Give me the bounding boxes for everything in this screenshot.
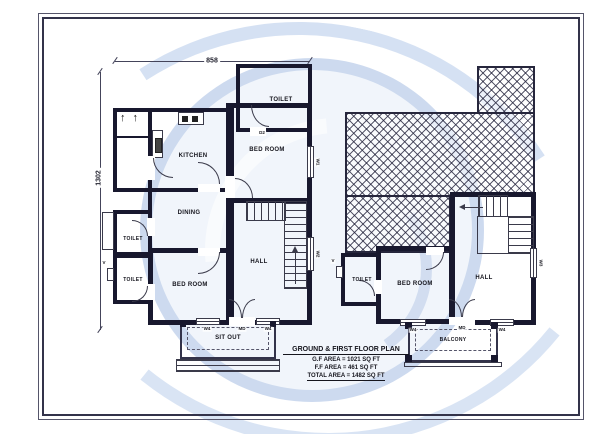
gf-stair-upper-run [246,201,286,221]
window-tag-w4: W4 [409,328,418,333]
ff-roof-hatch-lower [345,195,451,253]
vent-tag-v: V [330,259,335,264]
gf-lobby-divider-wall [117,136,148,138]
gf-front-window-left [196,318,220,325]
gf-stair-arrow-icon [292,246,298,252]
gf-toilet-top-label: TOILET [269,97,292,103]
gf-dining-room [148,188,234,252]
gf-sitout-steps [176,359,280,372]
gf-bedroom-label: BED ROOM [172,282,207,288]
total-area-text: TOTAL AREA = 1482 SQ FT [307,372,384,381]
dimension-line-left [100,72,101,330]
ff-bedroom-label: BED ROOM [397,281,432,287]
ff-roof-hatch-main [345,112,535,197]
ff-area-text: F.F AREA = 461 SQ FT [283,364,409,372]
sink-icon [152,130,163,158]
gf-main-door-gap [229,317,255,326]
ff-toilet-label: TOILET [352,277,372,283]
window-tag-w3: W3 [538,259,543,268]
gf-hall-window [307,237,314,271]
gf-toilet-low-label: TOILET [123,277,143,283]
window-tag-w2: W2 [315,250,320,259]
ff-toilet-vent [336,266,343,278]
gf-dining-label: DINING [178,210,201,216]
plan-title: GROUND & FIRST FLOOR PLAN [283,346,409,355]
gf-sitout-label: SIT OUT [215,335,241,341]
ff-hall-window [530,248,537,278]
gf-bedroom-top-label: BED ROOM [249,147,284,153]
floor-plan-sheet: 858 1302 ↑ ↑ [0,0,614,434]
vent-tag-v: V [101,261,106,266]
gf-area-text: G.F AREA = 1021 SQ FT [283,356,409,364]
ff-balcony-post [491,355,498,362]
gf-bedroom-top-window [307,146,314,178]
ff-balcony-edge-line [404,362,502,367]
gf-left-window-ledge [102,212,114,250]
window-tag-w4: W4 [203,327,212,332]
gf-sitout-post [180,321,186,327]
ff-stair-direction-line [465,207,483,208]
gf-toilet-mid-door-gap [147,218,155,236]
window-tag-w4: W4 [498,328,507,333]
ff-stair-arrow-icon [459,204,465,210]
gf-hall-label: HALL [250,259,267,265]
gf-kitchen-label: KITCHEN [179,153,208,159]
gf-kitchen-door-gap [198,184,220,192]
gf-toilet-mid-label: TOILET [123,236,143,242]
gf-toilet-low-door-gap [147,284,155,300]
window-tag-w1: W1 [315,158,320,167]
ff-toilet-door-gap [374,280,382,294]
dimension-height-label: 1302 [96,168,103,188]
title-block: GROUND & FIRST FLOOR PLAN G.F AREA = 102… [283,346,409,381]
window-tag-w4: W4 [264,327,273,332]
gf-bedroom-top-door-gap [225,176,235,198]
door-tag-md: MD [238,327,247,332]
ff-stair-top-run [478,195,508,217]
ff-hall-label: HALL [475,275,492,281]
gf-front-window-right [256,318,280,325]
dimension-width-label: 858 [204,58,220,65]
ff-bedroom-window [400,319,426,326]
up-arrows-icon: ↑ ↑ [120,112,140,124]
stove-icon [178,112,204,125]
ff-roof-hatch-top [477,66,535,114]
door-tag-d2: D2 [258,131,266,136]
ff-stair-landing [477,216,509,254]
gf-toilet-vent [107,268,114,281]
ff-balcony-label: BALCONY [440,337,467,343]
door-tag-md: MD [458,326,467,331]
gf-stair-direction-line [295,252,296,284]
